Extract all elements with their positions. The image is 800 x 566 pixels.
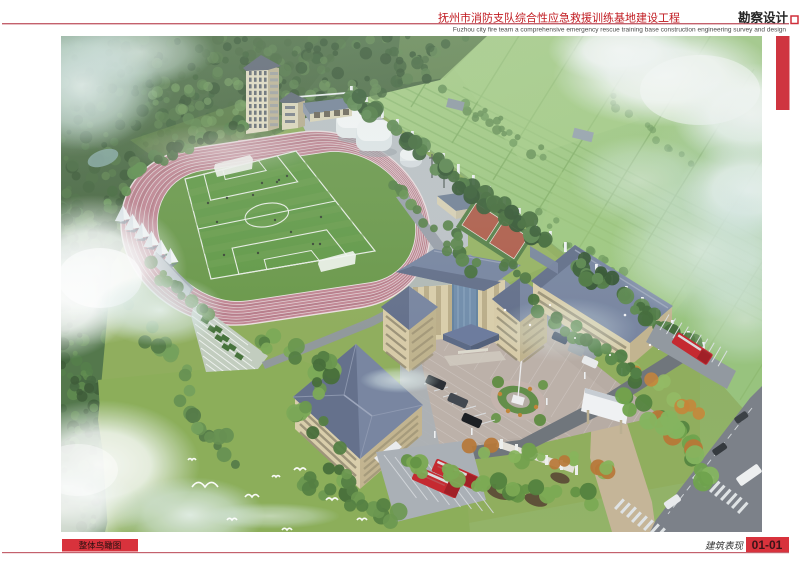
svg-text:抚州市消防支队综合性应急救援训练基地建设工程: 抚州市消防支队综合性应急救援训练基地建设工程: [438, 11, 680, 25]
svg-text:勘察设计: 勘察设计: [738, 10, 789, 25]
svg-text:01-01: 01-01: [752, 538, 783, 552]
svg-text:Fuzhou city fire team a compre: Fuzhou city fire team a comprehensive em…: [453, 27, 787, 34]
svg-text:整体鸟瞰图: 整体鸟瞰图: [79, 541, 122, 551]
svg-text:建筑表现: 建筑表现: [705, 540, 745, 552]
